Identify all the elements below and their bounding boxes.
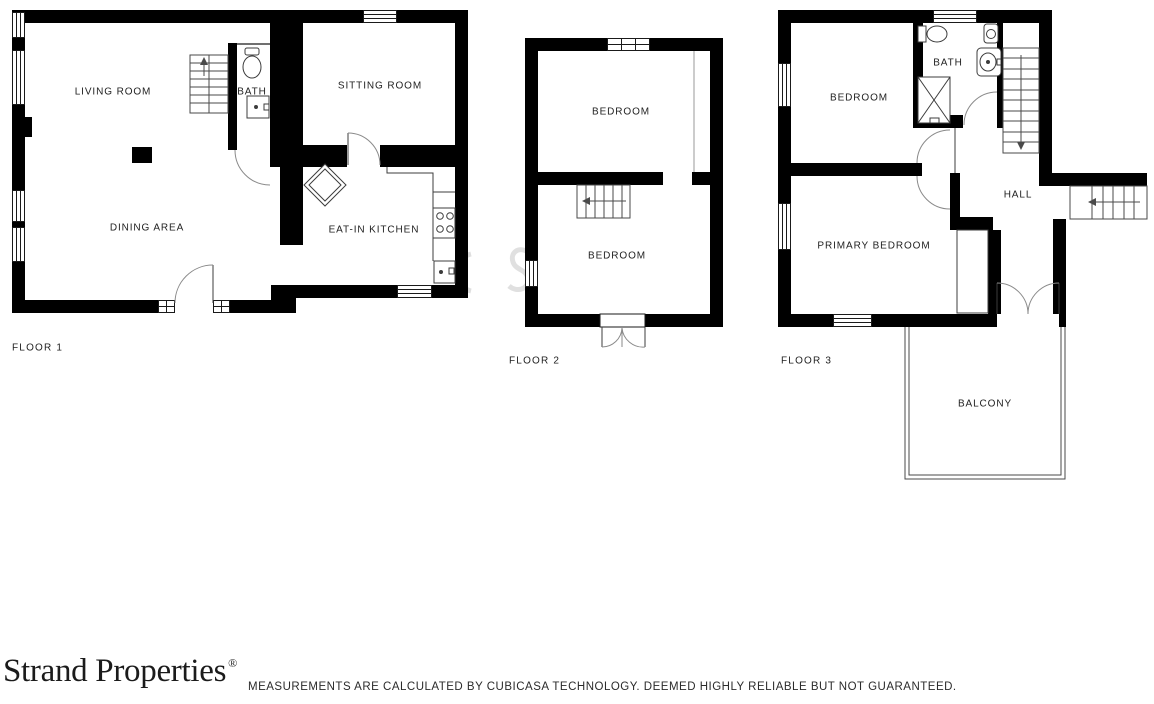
floor2-plan xyxy=(525,38,723,347)
floorplan-page: LIVING ROOM BATH SITTING ROOM DINING ARE… xyxy=(0,0,1154,704)
floor1-stairs xyxy=(190,55,228,113)
bath-door-arc xyxy=(964,92,997,125)
floor1-bath-fixtures xyxy=(243,48,269,118)
bedroom-door-arc xyxy=(917,130,950,163)
table-icon xyxy=(304,164,346,206)
room-label-hall: HALL xyxy=(1004,190,1033,201)
room-label-primary-bedroom: PRIMARY BEDROOM xyxy=(817,241,930,252)
floor2-double-door xyxy=(602,327,645,347)
room-label-dining-area: DINING AREA xyxy=(110,223,184,234)
room-label-living-room: LIVING ROOM xyxy=(75,87,152,98)
floor2-door-threshold xyxy=(600,314,645,327)
brand-logo: Strand Properties® xyxy=(3,653,237,690)
room-label-eat-in-kitchen: EAT-IN KITCHEN xyxy=(329,225,420,236)
registered-trademark-icon: ® xyxy=(228,656,237,670)
toilet-bowl-icon xyxy=(927,26,947,42)
floor2-walls xyxy=(525,38,723,327)
bath-sink-icon xyxy=(977,48,1001,76)
entry-sidelight-right xyxy=(214,301,230,313)
shower-icon xyxy=(918,77,950,123)
floor1-plan xyxy=(12,10,468,313)
toilet-icon xyxy=(245,48,259,55)
primary-bedroom-door-arc xyxy=(917,176,950,209)
fireplace xyxy=(132,147,152,163)
room-label-bedroom-f3: BEDROOM xyxy=(830,93,888,104)
floor1-title: FLOOR 1 xyxy=(12,343,63,354)
disclaimer-text: MEASUREMENTS ARE CALCULATED BY CUBICASA … xyxy=(248,681,957,693)
floor2-windows xyxy=(526,39,650,287)
closet xyxy=(957,230,988,313)
floor1-walls xyxy=(12,10,468,313)
room-label-balcony: BALCONY xyxy=(958,399,1012,410)
floorplan-canvas xyxy=(0,0,1154,704)
kitchen-door-arc xyxy=(348,133,380,165)
floor1-kitchen-fixtures xyxy=(304,164,455,283)
entry-sidelight-left xyxy=(159,301,175,313)
room-label-bath-floor1: BATH xyxy=(237,87,267,98)
floor3-title: FLOOR 3 xyxy=(781,356,832,367)
floor2-title: FLOOR 2 xyxy=(509,356,560,367)
bath-door-arc xyxy=(235,150,270,185)
floor2-stairs xyxy=(577,185,630,218)
room-label-bedroom-f2-bottom: BEDROOM xyxy=(588,251,646,262)
floor3-stairs-main xyxy=(1003,48,1039,153)
entry-threshold xyxy=(175,300,213,313)
room-label-sitting-room: SITTING ROOM xyxy=(338,81,422,92)
floor3-stairs-hall xyxy=(1070,186,1147,219)
floor3-bath-fixtures xyxy=(918,24,1001,123)
room-label-bath-floor3: BATH xyxy=(933,58,963,69)
toilet-tank-icon xyxy=(918,26,926,42)
kitchen-sink-icon xyxy=(434,261,455,283)
balcony-door-threshold xyxy=(997,314,1059,327)
balcony-door-arc-left xyxy=(997,283,1028,314)
bidet-icon xyxy=(984,24,998,43)
entry-door-arc xyxy=(175,265,213,303)
stove-icon xyxy=(433,208,455,238)
toilet-bowl-icon xyxy=(243,56,261,78)
brand-name: Strand Properties xyxy=(3,653,226,689)
counter-line xyxy=(387,167,455,192)
room-label-bedroom-f2-top: BEDROOM xyxy=(592,107,650,118)
